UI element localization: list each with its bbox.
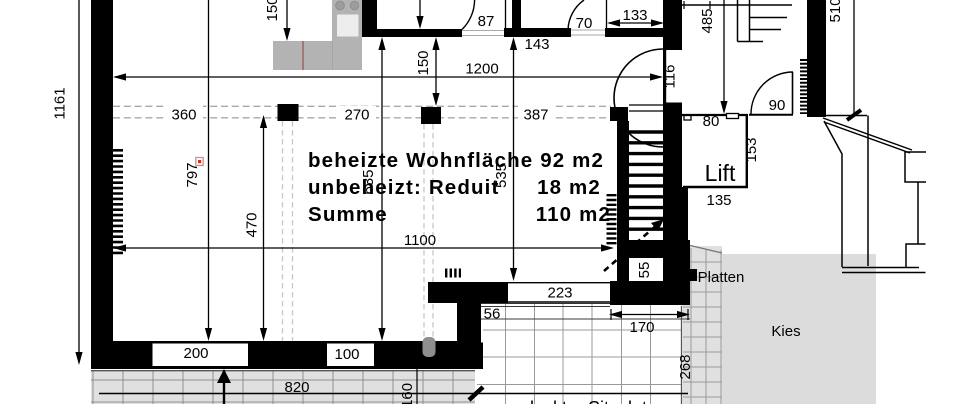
svg-text:gedeckter Sitzplatz: gedeckter Sitzplatz xyxy=(504,398,656,404)
svg-text:Kies: Kies xyxy=(771,323,800,340)
svg-text:100: 100 xyxy=(334,346,359,363)
svg-text:223: 223 xyxy=(547,285,572,302)
svg-text:150: 150 xyxy=(415,50,432,75)
svg-text:510: 510 xyxy=(827,0,844,23)
svg-text:200: 200 xyxy=(183,345,208,362)
svg-text:153: 153 xyxy=(743,137,760,162)
svg-text:170: 170 xyxy=(629,319,654,336)
svg-text:56: 56 xyxy=(484,306,501,323)
svg-text:70: 70 xyxy=(576,15,593,32)
svg-text:143: 143 xyxy=(524,36,549,53)
svg-text:80: 80 xyxy=(703,113,720,130)
svg-text:1160: 1160 xyxy=(399,383,416,404)
svg-text:Platten: Platten xyxy=(698,269,745,286)
svg-text:797: 797 xyxy=(184,162,201,187)
svg-text:150: 150 xyxy=(264,0,281,22)
svg-text:1100: 1100 xyxy=(404,232,436,249)
svg-text:Lift: Lift xyxy=(705,160,736,186)
svg-text:387: 387 xyxy=(523,107,548,124)
svg-text:90: 90 xyxy=(769,97,786,114)
svg-text:485: 485 xyxy=(699,8,716,33)
svg-text:116: 116 xyxy=(662,65,679,89)
svg-text:135: 135 xyxy=(706,192,731,209)
svg-text:1161: 1161 xyxy=(52,87,69,119)
svg-text:820: 820 xyxy=(284,379,309,396)
svg-text:470: 470 xyxy=(244,212,261,237)
svg-text:360: 360 xyxy=(171,107,196,124)
svg-text:110 m2: 110 m2 xyxy=(536,203,611,226)
svg-text:18 m2: 18 m2 xyxy=(537,176,601,199)
svg-text:1200: 1200 xyxy=(465,61,498,78)
svg-text:268: 268 xyxy=(677,354,694,379)
svg-text:Summe: Summe xyxy=(308,203,388,226)
svg-text:unbeheizt: Reduit: unbeheizt: Reduit xyxy=(308,176,500,199)
svg-text:270: 270 xyxy=(344,107,369,124)
svg-text:133: 133 xyxy=(622,7,647,24)
svg-text:beheizte Wohnfläche 92 m2: beheizte Wohnfläche 92 m2 xyxy=(308,149,604,172)
svg-text:87: 87 xyxy=(478,13,495,30)
svg-text:55: 55 xyxy=(636,262,653,279)
